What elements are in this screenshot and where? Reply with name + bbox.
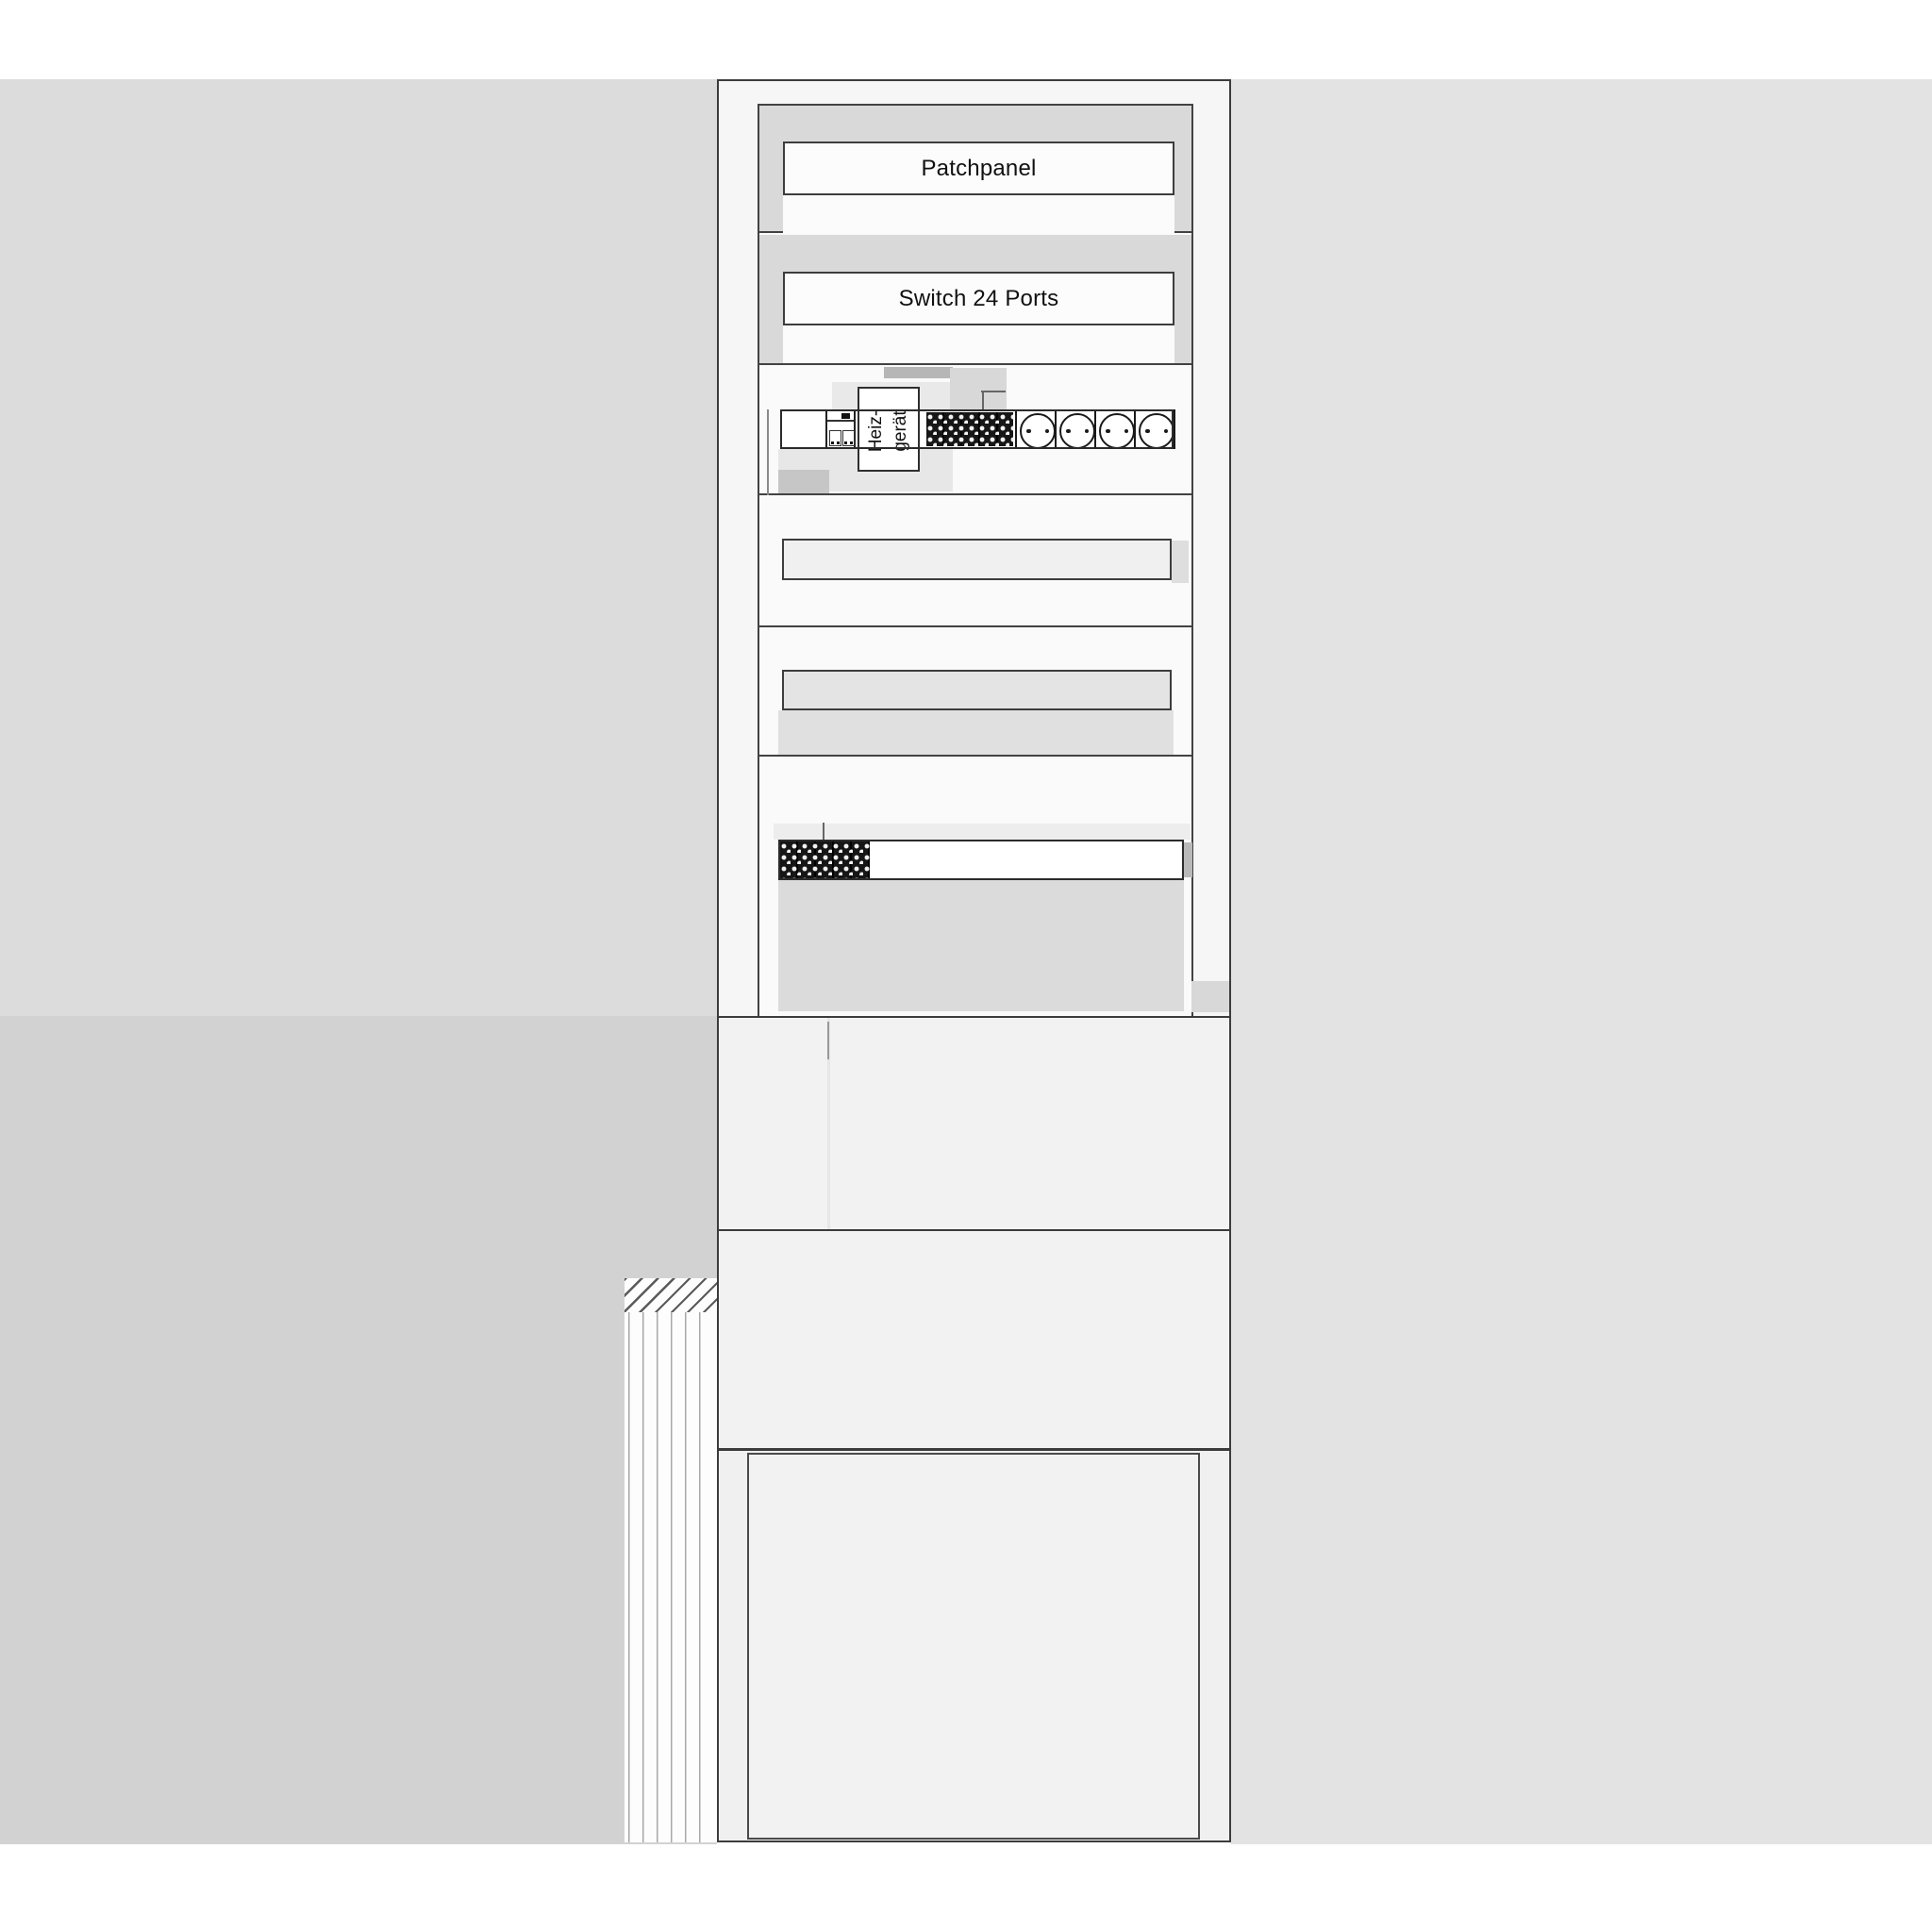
- device-shadow-area: [778, 880, 1184, 1011]
- blank-module: [782, 670, 1172, 710]
- background-left-upper: [0, 79, 717, 1016]
- rack-band-patchpanel: Patchpanel: [759, 106, 1191, 233]
- switch-label: Switch 24 Ports: [899, 286, 1059, 312]
- wall-hatch: [625, 1278, 717, 1842]
- patchpanel-unit: Patchpanel: [783, 142, 1174, 195]
- switch-unit: Switch 24 Ports: [783, 272, 1174, 325]
- rack-frame: Patchpanel Switch 24 Ports: [758, 104, 1193, 1018]
- shadow-patch: [778, 470, 829, 493]
- door-section-middle: [719, 1231, 1229, 1448]
- patchpanel-label: Patchpanel: [921, 156, 1036, 182]
- rack-row-blank-1: [759, 495, 1191, 627]
- tick-line: [982, 391, 984, 409]
- background-left-lower: [0, 1016, 717, 1844]
- rack-band-switch: Switch 24 Ports: [759, 235, 1191, 365]
- shadow-patch: [778, 710, 1174, 755]
- socket-strip-outline: [780, 409, 1174, 449]
- tick-line: [981, 391, 1006, 392]
- base-inner-panel: [747, 1453, 1200, 1840]
- shadow-patch: [1191, 981, 1229, 1012]
- shadow-patch: [950, 368, 1007, 409]
- background-right: [1231, 79, 1932, 1844]
- schematic-canvas: Patchpanel Switch 24 Ports: [0, 0, 1932, 1932]
- device-strip: [778, 840, 1184, 880]
- door-section-upper: [719, 1018, 1229, 1229]
- vent-grille-icon: [780, 841, 870, 878]
- wall-hatch-diagonal-icon: [625, 1278, 717, 1312]
- shadow-patch: [774, 824, 1191, 840]
- rack-row-power-strip: Heiz- gerät: [759, 365, 1191, 495]
- wall-hatch-vertical-lines: [628, 1312, 713, 1842]
- tick-line: [823, 823, 824, 840]
- rack-row-blank-2: [759, 627, 1191, 757]
- door-seam-tick: [827, 1022, 829, 1059]
- shadow-patch: [884, 367, 953, 378]
- shadow-patch: [1184, 842, 1192, 877]
- cabinet-outline: Patchpanel Switch 24 Ports: [717, 79, 1231, 1842]
- shadow-patch: [1172, 541, 1189, 583]
- rack-row-device: [759, 757, 1191, 1018]
- blank-module: [782, 539, 1172, 580]
- base-compartment: [719, 1451, 1229, 1840]
